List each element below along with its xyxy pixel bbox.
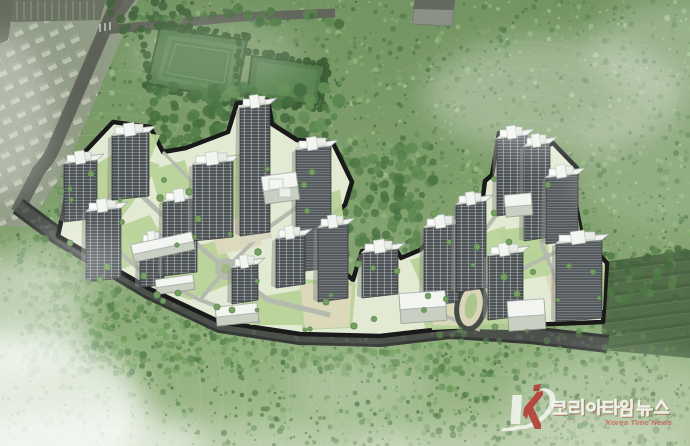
svg-text:Korea Time News: Korea Time News: [605, 418, 672, 427]
